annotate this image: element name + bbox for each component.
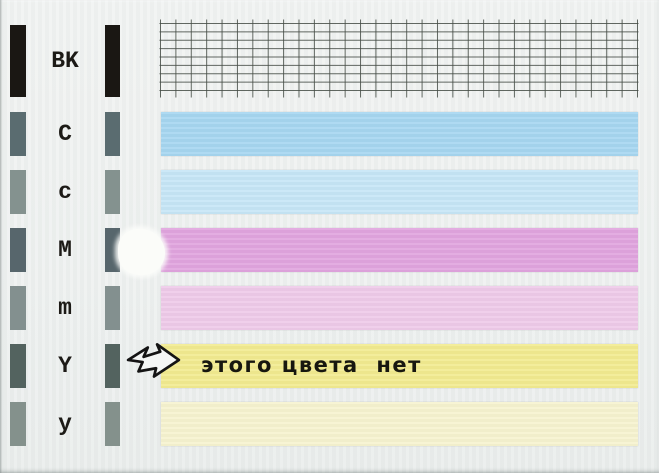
channel-bar-left	[10, 344, 26, 388]
color-band	[161, 228, 638, 272]
missing-color-note: этого цвета нет	[201, 344, 422, 388]
channel-label: y	[42, 402, 88, 446]
color-band	[161, 170, 638, 214]
channel-label: m	[42, 286, 88, 330]
channel-bar-left	[10, 402, 26, 446]
channel-bar-right	[105, 402, 120, 446]
channel-label: c	[42, 170, 88, 214]
channel-bar-left	[10, 228, 26, 272]
channel-bar-right	[105, 286, 120, 330]
color-band	[161, 112, 638, 156]
channel-bar-left	[10, 112, 26, 156]
channel-label: BK	[42, 25, 88, 97]
color-band	[161, 402, 638, 446]
channel-bar-right	[105, 170, 120, 214]
color-band	[161, 286, 638, 330]
channel-bar-right	[105, 112, 120, 156]
channel-bar-right	[105, 25, 120, 97]
white-correction-smudge	[118, 229, 165, 275]
channel-label: C	[42, 112, 88, 156]
nozzle-check-scan: BK C c M m Y этого цвета нет y	[0, 0, 659, 473]
channel-label: M	[42, 228, 88, 272]
channel-bar-left	[10, 170, 26, 214]
channel-label: Y	[42, 344, 88, 388]
nozzle-check-grid	[159, 19, 640, 99]
channel-bar-right	[105, 344, 120, 388]
channel-bar-left	[10, 286, 26, 330]
channel-bar-left	[10, 25, 26, 97]
hand-drawn-right-arrow-icon	[126, 342, 182, 380]
